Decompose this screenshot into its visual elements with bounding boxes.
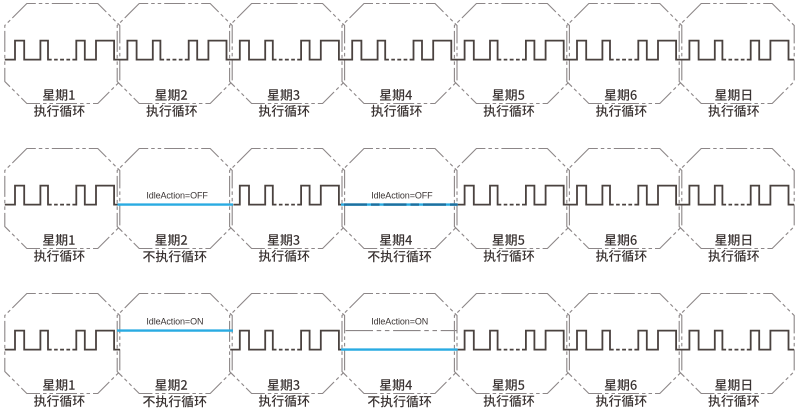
svg-text:IdleAction=ON: IdleAction=ON (146, 316, 203, 326)
svg-text:IdleAction=ON: IdleAction=ON (371, 316, 428, 326)
svg-text:IdleAction=OFF: IdleAction=OFF (371, 190, 433, 200)
svg-text:IdleAction=OFF: IdleAction=OFF (146, 190, 208, 200)
